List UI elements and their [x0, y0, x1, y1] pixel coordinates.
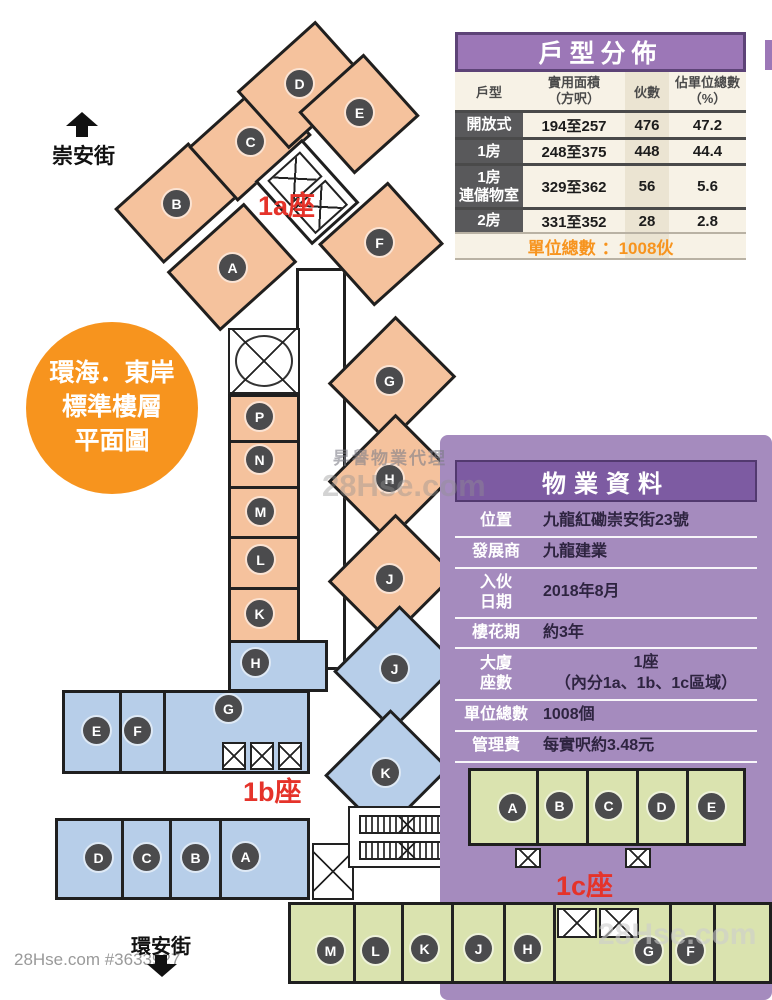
north-arrow-stem: [76, 126, 88, 137]
north-arrow-icon: [66, 112, 98, 126]
unit-circle: A: [219, 254, 246, 281]
property-row-occupation-date: 入伙日期 2018年8月: [455, 569, 757, 619]
unit-circle: C: [237, 128, 264, 155]
unit-circle: J: [465, 935, 492, 962]
unit-circle: D: [286, 70, 313, 97]
unit-distribution-table: 戶型分佈 戶型 實用面積（方呎） 伙數 佔單位總數（%） 開放式 194至257…: [455, 32, 746, 260]
stairwell-central: [228, 328, 300, 394]
property-row-presale-period: 樓花期 約3年: [455, 619, 757, 650]
unit-row-1br: 1房 248至375 448 44.4: [455, 137, 746, 163]
unit-circle: K: [372, 759, 399, 786]
unit-circle: A: [232, 843, 259, 870]
property-row-total-units: 單位總數 1008個: [455, 701, 757, 732]
unit-circle: L: [247, 546, 274, 573]
unit-circle: D: [648, 793, 675, 820]
south-arrow-stem: [155, 955, 167, 964]
unit-circle: A: [499, 794, 526, 821]
unit-row-2br: 2房 331至352 28 2.8: [455, 207, 746, 232]
badge-line-1: 環海．東岸: [49, 357, 174, 391]
unit-row-studio: 開放式 194至257 476 47.2: [455, 110, 746, 137]
unit-circle: F: [124, 717, 151, 744]
property-row-blocks: 大廈座數 1座（內分1a、1b、1c區域）: [455, 649, 757, 701]
unit-circle: C: [595, 792, 622, 819]
unit-circle: H: [242, 649, 269, 676]
street-label-top: 崇安街: [52, 140, 115, 170]
wing-label-1c: 1c座: [556, 864, 613, 903]
project-title-badge: 環海．東岸 標準樓層 平面圖: [26, 322, 198, 494]
unit-table-total: 單位總數：1008伙: [455, 232, 746, 258]
property-table: 物業資料 位置 九龍紅磡崇安街23號 發展商 九龍建業 入伙日期 2018年8月…: [455, 460, 757, 763]
property-row-management-fee: 管理費 每實呎約3.48元: [455, 732, 757, 763]
unit-circle: E: [346, 99, 373, 126]
unit-circle: J: [381, 655, 408, 682]
lift-1c-lobby-2: [625, 848, 651, 868]
badge-line-2: 標準樓層: [62, 391, 162, 425]
south-arrow-icon: [147, 964, 177, 977]
unit-circle: E: [83, 717, 110, 744]
property-row-location: 位置 九龍紅磡崇安街23號: [455, 507, 757, 538]
unit-circle: K: [246, 600, 273, 627]
property-row-developer: 發展商 九龍建業: [455, 538, 757, 569]
unit-circle: M: [247, 498, 274, 525]
brand-watermark-bottom: 28Hse.com: [598, 918, 756, 952]
unit-row-1br-storeroom: 1房連儲物室 329至362 56 5.6: [455, 163, 746, 207]
agency-watermark: 昇譽物業代理: [333, 444, 447, 469]
floorplan-flyer: 物業資料 位置 九龍紅磡崇安街23號 發展商 九龍建業 入伙日期 2018年8月…: [0, 0, 772, 1000]
unit-circle: B: [182, 844, 209, 871]
unit-circle: E: [698, 793, 725, 820]
unit-circle: C: [133, 844, 160, 871]
property-table-title: 物業資料: [455, 460, 757, 502]
unit-circle: F: [366, 229, 393, 256]
unit-circle: N: [246, 446, 273, 473]
unit-circle: G: [376, 367, 403, 394]
unit-circle: P: [246, 403, 273, 430]
unit-table-title: 戶型分佈: [455, 32, 746, 72]
badge-line-3: 平面圖: [74, 425, 149, 459]
unit-circle: B: [163, 190, 190, 217]
unit-table-column-headers: 戶型 實用面積（方呎） 伙數 佔單位總數（%）: [455, 72, 746, 110]
lift-1c-lobby-1: [515, 848, 541, 868]
unit-circle: D: [85, 844, 112, 871]
unit-circle: M: [317, 937, 344, 964]
wing-label-1b: 1b座: [243, 770, 302, 809]
edge-purple-notch: [765, 40, 772, 70]
unit-circle: H: [514, 935, 541, 962]
unit-circle: B: [546, 792, 573, 819]
unit-circle: K: [411, 935, 438, 962]
wing-label-1a: 1a座: [258, 184, 315, 223]
unit-circle: J: [376, 565, 403, 592]
unit-circle: L: [362, 937, 389, 964]
brand-watermark-center: 28Hse.com: [322, 468, 486, 504]
unit-circle: G: [215, 695, 242, 722]
